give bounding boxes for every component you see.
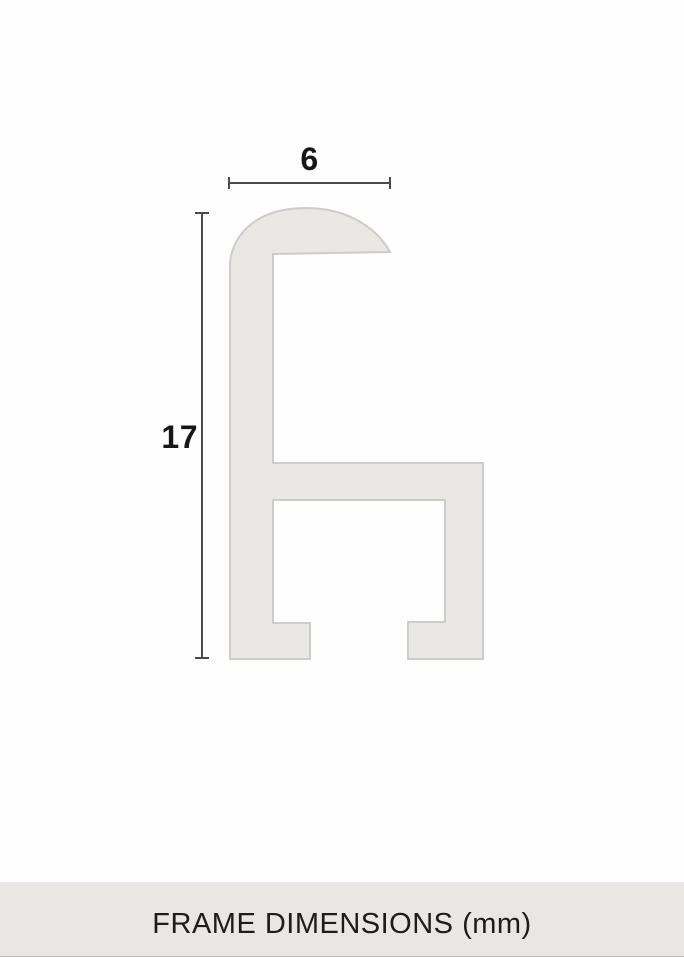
profile-cross-section-svg <box>0 0 684 882</box>
footer-bar: FRAME DIMENSIONS (mm) <box>0 882 684 957</box>
footer-title: FRAME DIMENSIONS (mm) <box>152 908 531 941</box>
profile-drawing-area: 6 17 <box>0 0 684 882</box>
width-dimension-value: 6 <box>229 141 390 177</box>
height-dimension-value: 17 <box>136 419 198 455</box>
frame-dimensions-diagram: 6 17 FRAME DIMENSIONS (mm) <box>0 0 684 957</box>
frame-profile-cross-section <box>230 208 483 659</box>
width-dimension-line <box>229 177 390 189</box>
